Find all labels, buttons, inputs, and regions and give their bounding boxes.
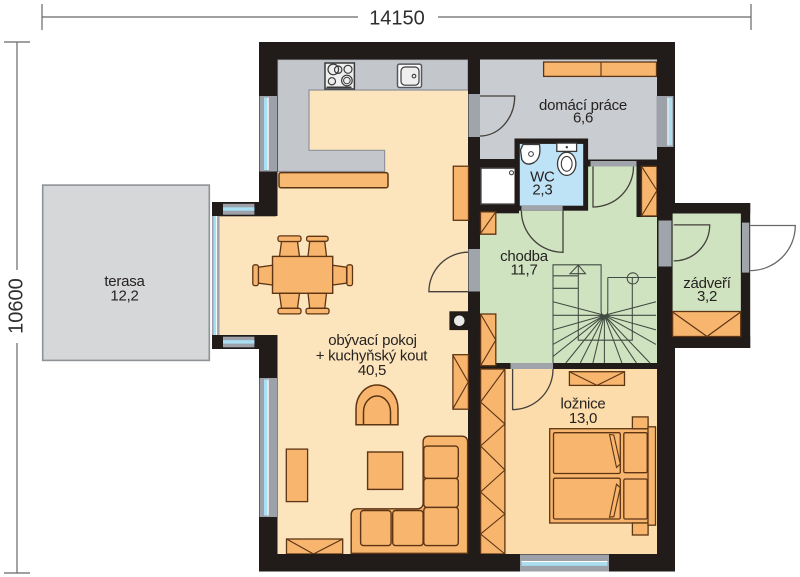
svg-text:10600: 10600 — [6, 278, 28, 334]
svg-text:2,3: 2,3 — [532, 182, 552, 199]
svg-text:12,2: 12,2 — [110, 288, 138, 305]
svg-text:13,0: 13,0 — [569, 410, 597, 427]
svg-text:11,7: 11,7 — [510, 262, 537, 279]
svg-text:3,2: 3,2 — [697, 288, 717, 305]
svg-text:40,5: 40,5 — [358, 362, 386, 379]
svg-text:6,6: 6,6 — [573, 110, 593, 127]
svg-text:obývací pokoj: obývací pokoj — [328, 332, 416, 349]
svg-text:14150: 14150 — [369, 8, 425, 30]
